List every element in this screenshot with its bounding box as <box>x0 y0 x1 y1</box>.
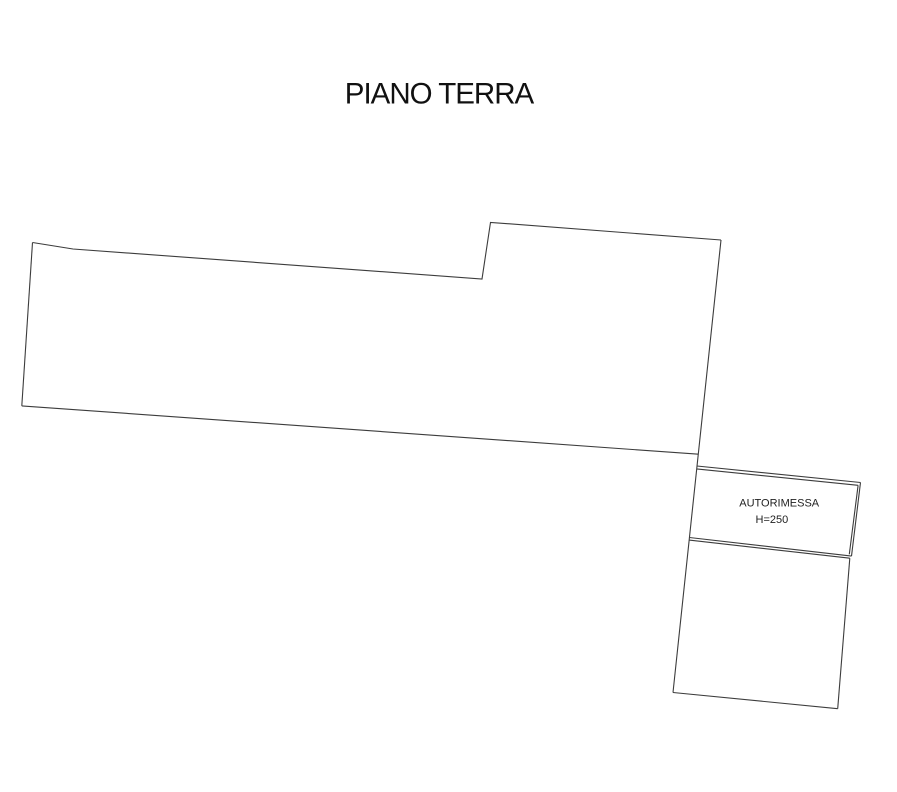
svg-text:AUTORIMESSA: AUTORIMESSA <box>739 498 820 510</box>
svg-text:H=250: H=250 <box>756 514 789 526</box>
svg-text:PIANO TERRA: PIANO TERRA <box>345 78 535 111</box>
